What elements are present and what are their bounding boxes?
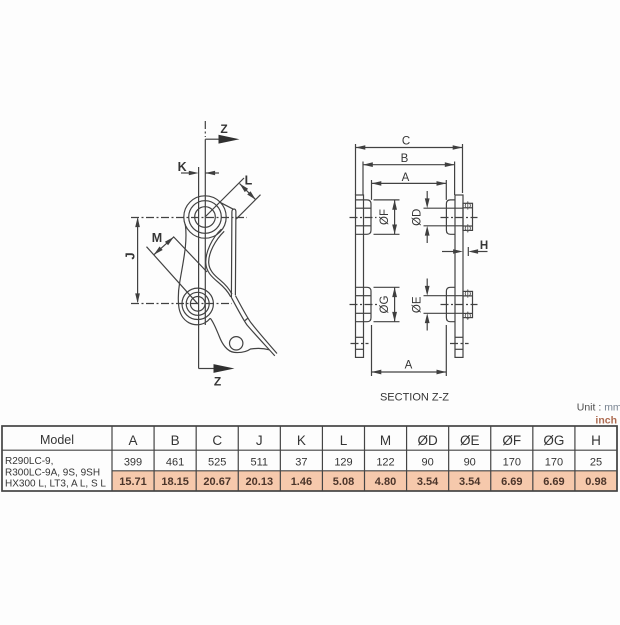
svg-text:511: 511 (251, 456, 269, 468)
svg-text:20.13: 20.13 (246, 476, 274, 488)
svg-text:H: H (591, 433, 601, 448)
svg-text:20.67: 20.67 (203, 476, 231, 488)
svg-text:J: J (123, 252, 138, 259)
svg-text:A: A (405, 360, 413, 372)
svg-text:inch: inch (595, 415, 617, 427)
svg-text:ØE: ØE (412, 296, 424, 313)
svg-text:122: 122 (376, 456, 394, 468)
svg-text:399: 399 (124, 456, 142, 468)
svg-text:B: B (401, 153, 409, 165)
svg-text:K: K (178, 160, 187, 174)
svg-text:HX300 L, LT3, A L, S L: HX300 L, LT3, A L, S L (5, 479, 106, 490)
svg-text:ØF: ØF (502, 433, 521, 448)
svg-text:Model: Model (40, 433, 74, 447)
svg-text:ØD: ØD (417, 433, 438, 448)
svg-text:K: K (297, 433, 306, 448)
svg-text:A: A (128, 433, 137, 448)
svg-text:Unit : mm: Unit : mm (577, 402, 620, 414)
svg-text:ØE: ØE (460, 433, 480, 448)
svg-text:525: 525 (208, 456, 226, 468)
svg-text:R290LC-9,: R290LC-9, (5, 456, 53, 467)
svg-text:C: C (402, 136, 410, 148)
svg-text:R300LC-9A, 9S, 9SH: R300LC-9A, 9S, 9SH (5, 467, 100, 478)
svg-text:18.15: 18.15 (161, 476, 189, 488)
svg-text:B: B (171, 433, 180, 448)
svg-text:6.69: 6.69 (501, 476, 522, 488)
svg-text:H: H (480, 240, 488, 252)
svg-text:ØG: ØG (543, 433, 564, 448)
svg-text:37: 37 (295, 456, 307, 468)
svg-text:461: 461 (166, 456, 184, 468)
svg-text:129: 129 (334, 456, 352, 468)
svg-text:25: 25 (590, 456, 602, 468)
svg-text:3.54: 3.54 (459, 476, 481, 488)
svg-text:ØF: ØF (379, 209, 391, 225)
svg-text:Z: Z (214, 375, 221, 389)
svg-text:ØD: ØD (412, 209, 424, 226)
svg-text:170: 170 (503, 456, 521, 468)
svg-text:5.08: 5.08 (333, 476, 354, 488)
svg-text:3.54: 3.54 (417, 476, 439, 488)
svg-text:J: J (256, 433, 263, 448)
svg-text:SECTION Z-Z: SECTION Z-Z (380, 392, 449, 404)
svg-text:90: 90 (464, 456, 476, 468)
svg-text:A: A (402, 172, 410, 184)
svg-text:90: 90 (421, 456, 433, 468)
svg-text:L: L (340, 433, 348, 448)
svg-text:Z: Z (220, 122, 227, 136)
svg-text:1.46: 1.46 (291, 476, 312, 488)
svg-text:ØG: ØG (379, 296, 391, 314)
svg-text:L: L (245, 174, 253, 188)
svg-text:15.71: 15.71 (119, 476, 147, 488)
svg-text:C: C (212, 433, 222, 448)
svg-text:M: M (380, 433, 391, 448)
svg-text:4.80: 4.80 (375, 476, 396, 488)
svg-text:0.98: 0.98 (585, 476, 606, 488)
svg-text:170: 170 (545, 456, 563, 468)
svg-text:6.69: 6.69 (543, 476, 564, 488)
svg-text:M: M (152, 231, 162, 245)
